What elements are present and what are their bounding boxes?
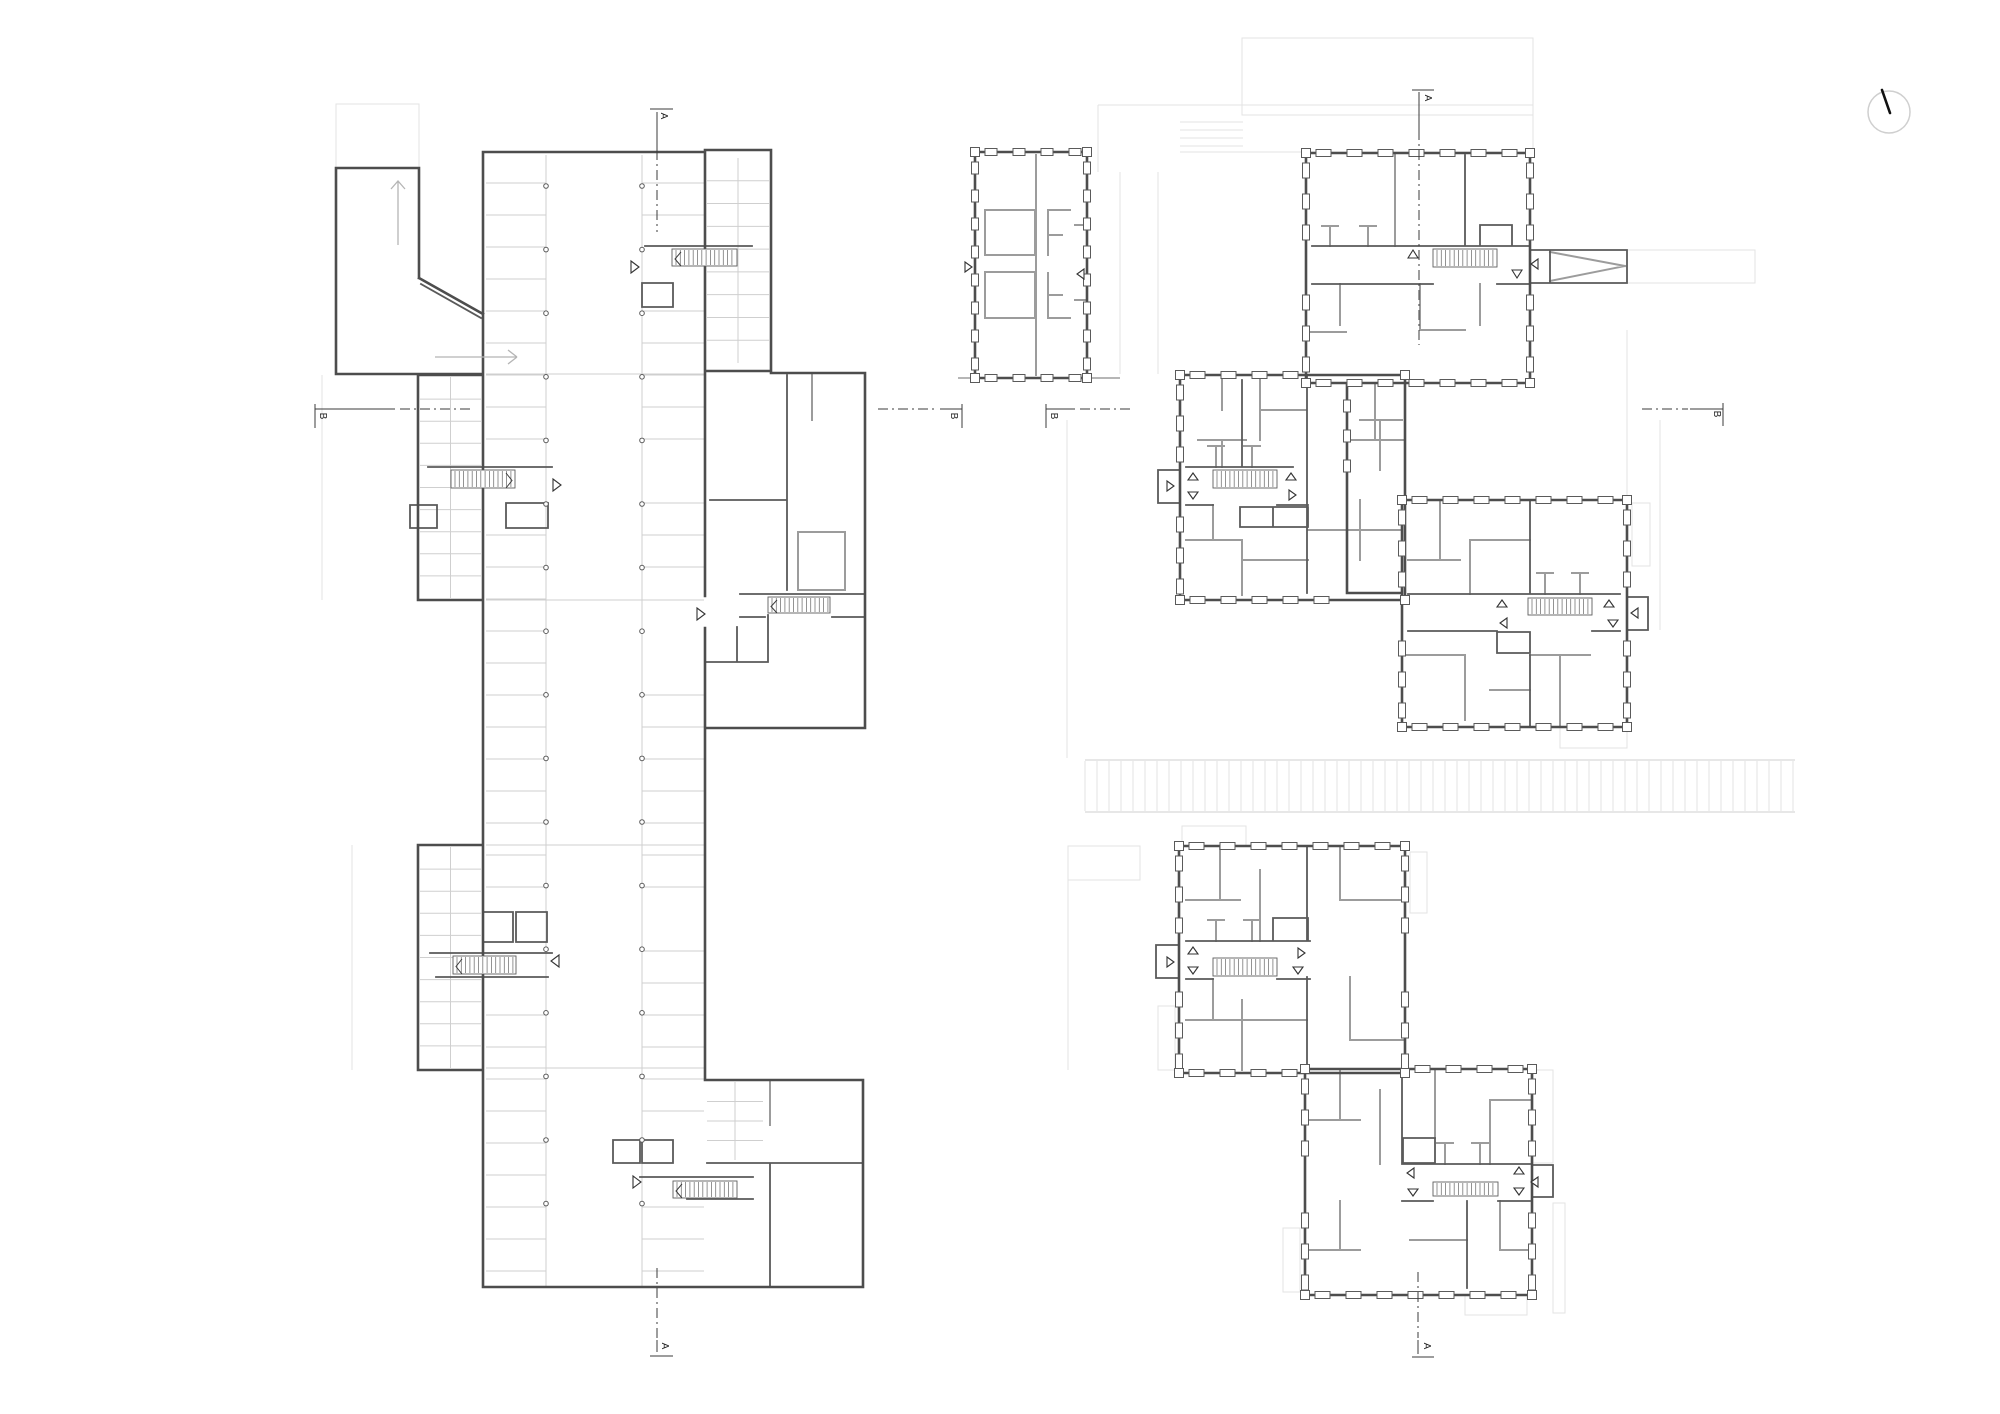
direction-triangle-icon [551,955,559,967]
direction-triangle-icon [1407,1168,1414,1178]
interior-walls [410,246,865,1287]
section-label-a-top-upper: A [1421,92,1433,104]
stair-icon [453,956,516,974]
stair-icon [673,1181,737,1198]
outer-walls [336,150,865,1287]
north-needle-icon [1882,90,1890,113]
direction-triangle-icon [697,608,705,620]
ground-level-faint-outline [1067,38,1755,1315]
section-label-b-right-upper: B [1710,408,1722,420]
direction-triangle-icon [1188,967,1198,974]
section-label-b-left-upper: B [1047,410,1059,422]
direction-triangle-icon [1514,1167,1524,1174]
stair-icon [1433,249,1497,267]
stair-icon [768,597,830,613]
section-marker-lines [315,109,962,1356]
ramp-direction-arrow-icon [391,181,517,364]
direction-triangle-icon [1077,269,1084,279]
stair-icon [1213,470,1277,488]
floor-plan-drawing [0,0,2000,1414]
section-label-a-bottom-upper: A [1420,1340,1432,1352]
direction-triangle-icon [1512,270,1522,278]
drawing-sheet: A A B B A A B B [0,0,2000,1414]
section-label-a-bottom-garage: A [658,1340,670,1352]
stair-icon [672,249,737,266]
entry-arrow-icons [551,261,705,1188]
direction-triangle-icon [1286,473,1296,480]
stair-icon [1528,598,1592,615]
parking-bay-lines [486,183,704,1271]
direction-triangle-icon [1514,1188,1524,1195]
garage-floor-plan [315,104,962,1356]
direction-triangle-icon [1167,957,1174,967]
direction-triangle-icon [1167,481,1174,491]
direction-triangle-icon [1604,600,1614,607]
direction-triangle-icon [1408,250,1418,258]
direction-triangle-icon [1497,600,1507,607]
grid-lines [486,155,704,1287]
direction-triangle-icon [1608,620,1618,627]
direction-triangle-icon [553,479,561,491]
direction-triangle-icon [1408,1189,1418,1196]
direction-triangle-icon [631,261,639,273]
stair-icon [451,470,515,488]
section-label-b-left-garage: B [316,410,328,422]
pergola-hatched-strip [1085,760,1795,812]
direction-triangle-icon [1298,948,1305,958]
stair-icons [451,249,830,1198]
direction-triangle-icon [1289,490,1296,500]
direction-triangle-icon [1188,947,1198,954]
section-marker-lines [1046,90,1723,1357]
direction-triangle-icon [1531,259,1538,269]
upper-floor-plan [958,38,1795,1357]
direction-triangle-icon [1188,492,1198,499]
stair-icon [1433,1182,1498,1196]
direction-triangle-icon [1188,473,1198,480]
north-indicator [1868,90,1910,133]
direction-triangle-icon [1293,967,1303,974]
column-dots [544,184,645,1206]
direction-triangle-icon [965,262,972,272]
section-label-b-right-garage: B [947,410,959,422]
section-label-a-top-garage: A [657,110,669,122]
direction-triangle-icon [1500,618,1507,628]
gray-partitions [770,375,845,1125]
direction-triangle-icon [1631,608,1638,618]
stair-icon [1213,958,1277,976]
